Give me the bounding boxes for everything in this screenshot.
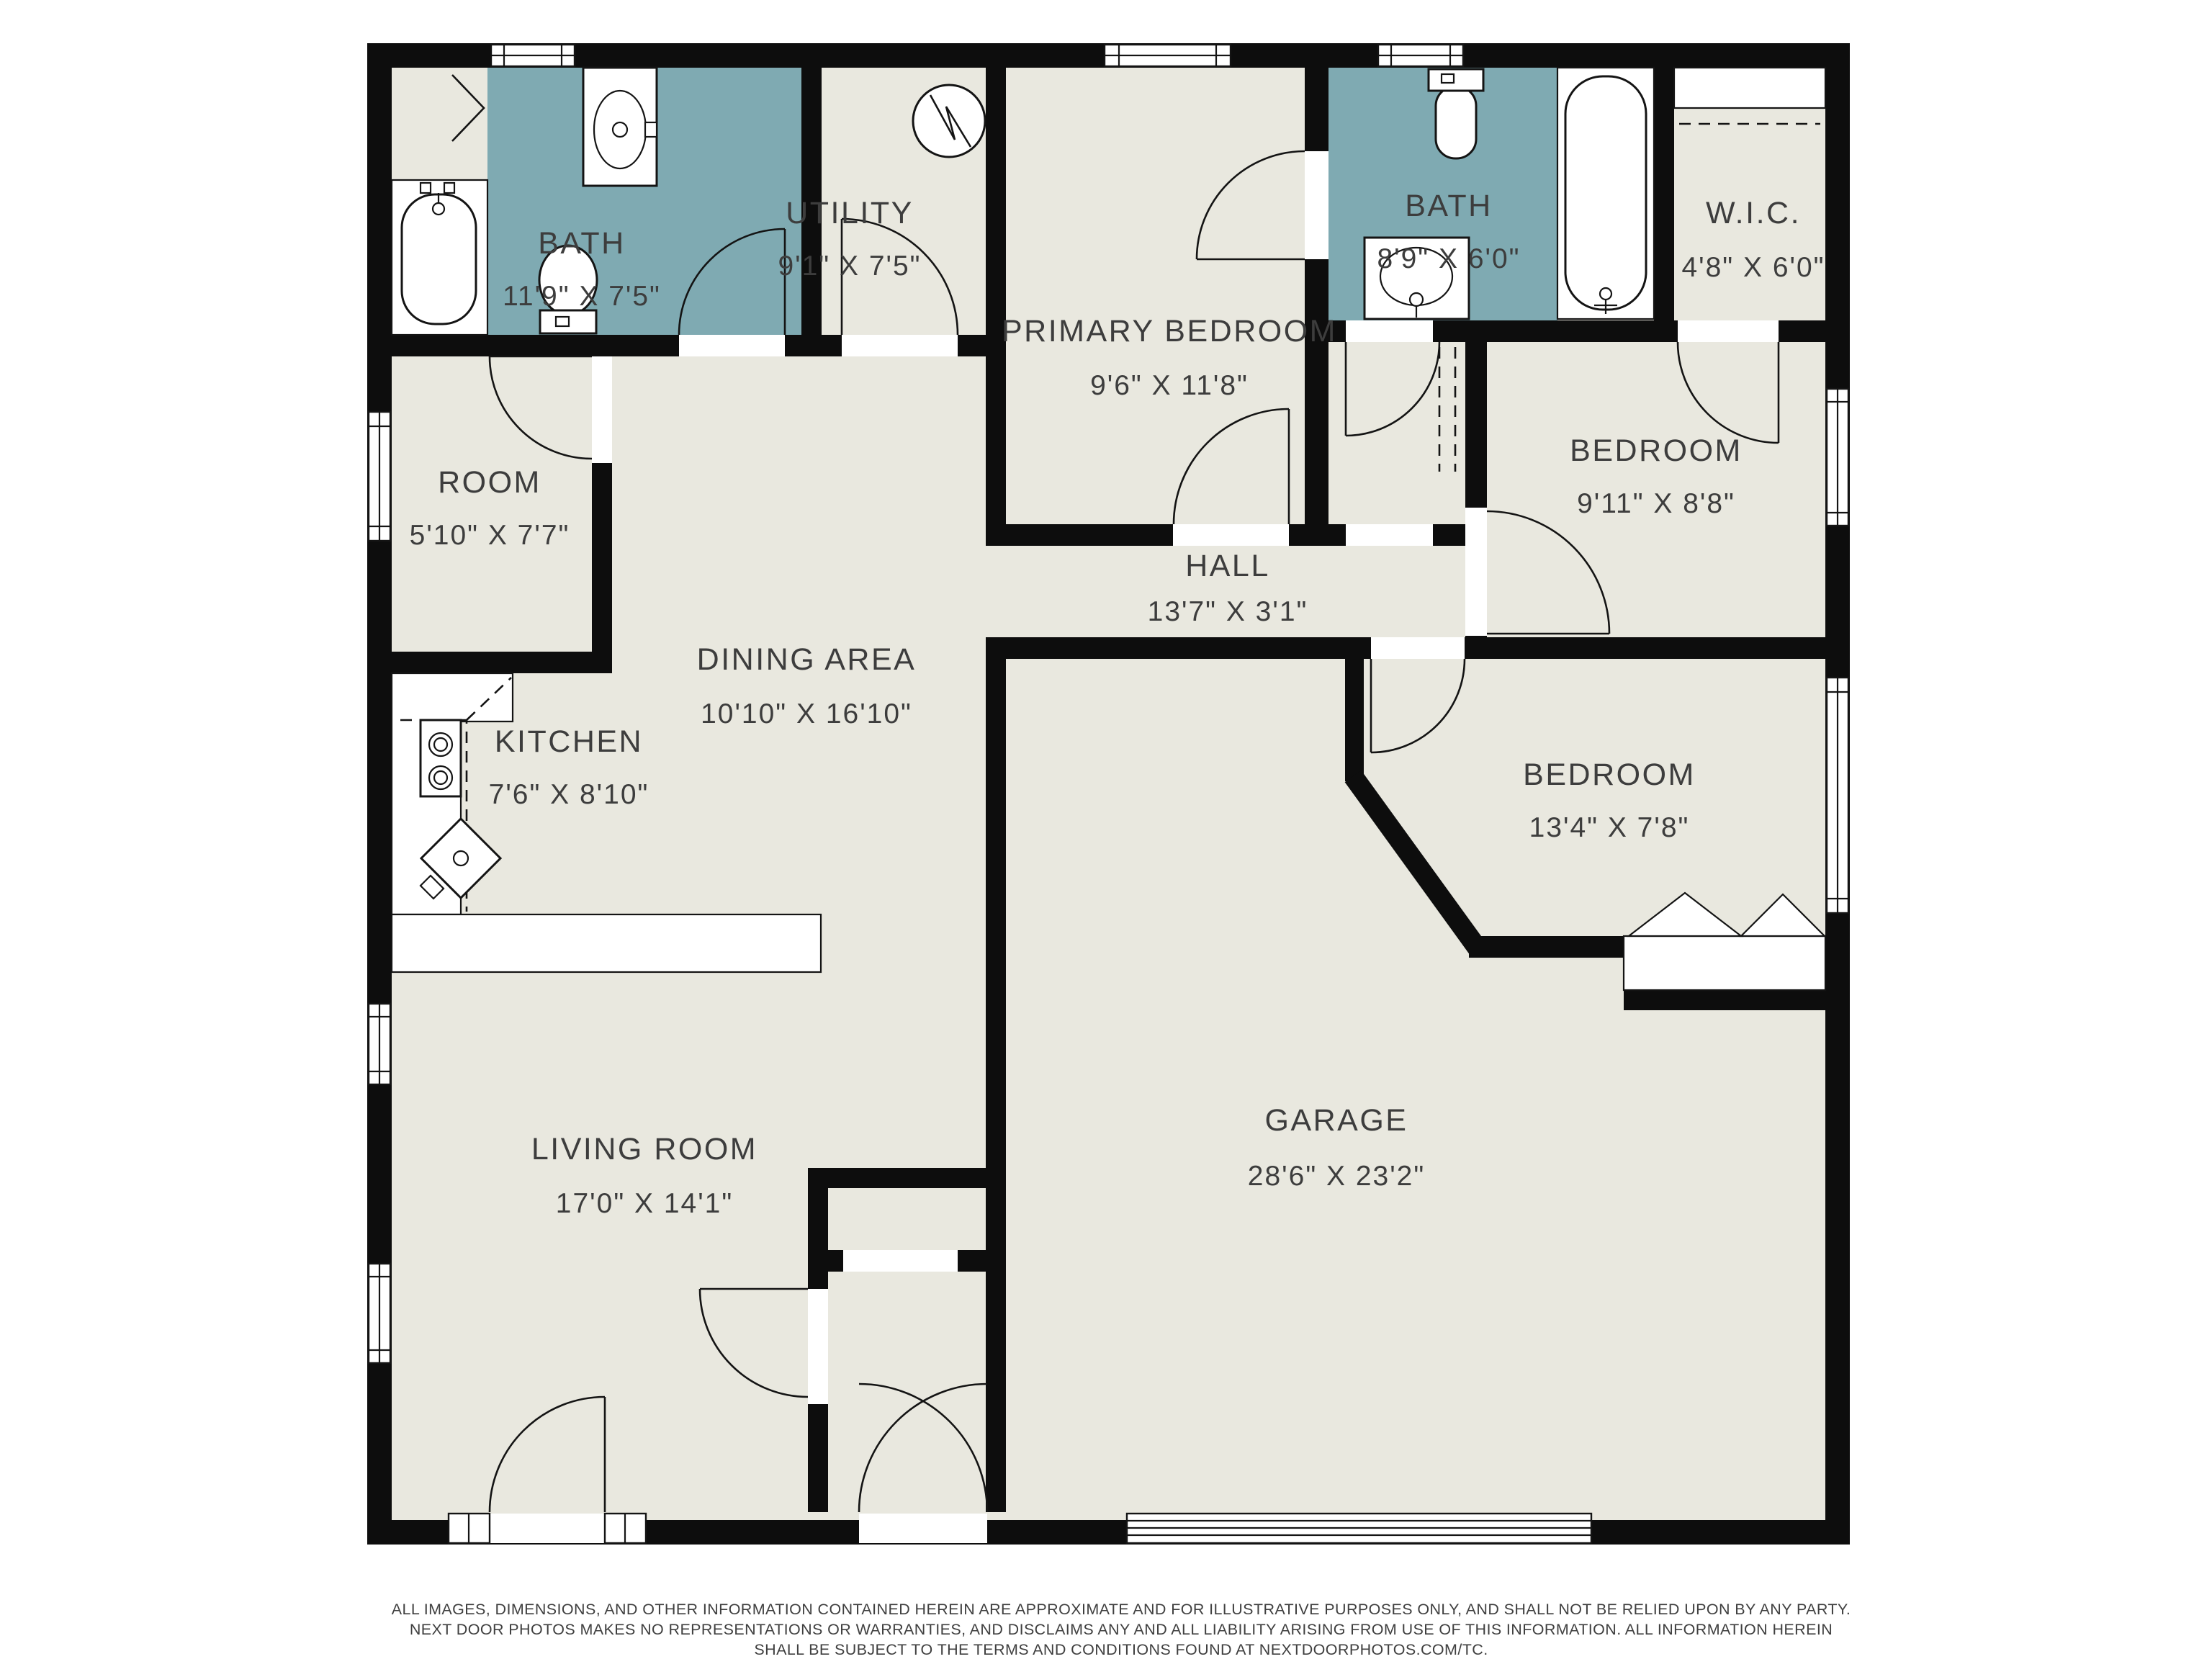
floor-plan-page: BATH 11'9" X 7'5" UTILITY 9'1" X 7'5" PR…: [0, 0, 2212, 1659]
room-label-bedroom-ne: BEDROOM: [1570, 433, 1743, 468]
window-icon: [605, 1514, 646, 1543]
room-dims-living-room: 17'0" X 14'1": [556, 1188, 733, 1219]
sink-icon: [583, 68, 657, 186]
room-dims-wic: 4'8" X 6'0": [1681, 252, 1825, 283]
floor-plan: BATH 11'9" X 7'5" UTILITY 9'1" X 7'5" PR…: [0, 0, 2212, 1659]
room-label-living-room: LIVING ROOM: [531, 1132, 757, 1166]
room-dims-dining-area: 10'10" X 16'10": [701, 698, 912, 729]
window-icon: [491, 45, 575, 66]
disclaimer: ALL IMAGES, DIMENSIONS, AND OTHER INFORM…: [392, 1601, 1851, 1658]
room-dims-hall: 13'7" X 3'1": [1148, 596, 1308, 627]
window-icon: [449, 1514, 490, 1543]
room-label-bath-2: BATH: [1405, 189, 1493, 223]
bathtub-icon: [392, 180, 487, 335]
disclaimer-line-1: ALL IMAGES, DIMENSIONS, AND OTHER INFORM…: [392, 1601, 1851, 1618]
bathtub-icon: [1557, 68, 1654, 319]
room-label-room: ROOM: [438, 465, 541, 500]
room-label-hall: HALL: [1185, 549, 1270, 583]
room-dims-bedroom-ne: 9'11" X 8'8": [1577, 488, 1735, 519]
room-label-bath-1: BATH: [538, 226, 626, 261]
room-label-kitchen: KITCHEN: [495, 724, 643, 759]
window-icon: [369, 1264, 390, 1363]
room-dims-bath-1: 11'9" X 7'5": [503, 281, 661, 312]
toilet-icon: [1429, 69, 1483, 158]
window-icon: [1378, 45, 1463, 66]
window-icon: [369, 1004, 390, 1084]
garage-door-icon: [1127, 1514, 1591, 1543]
room-dims-utility: 9'1" X 7'5": [778, 251, 921, 282]
room-dims-kitchen: 7'6" X 8'10": [489, 779, 649, 810]
room-dims-primary-bedroom: 9'6" X 11'8": [1090, 370, 1249, 401]
window-icon: [1827, 389, 1848, 526]
room-label-utility: UTILITY: [786, 196, 914, 230]
stove-icon: [421, 720, 461, 796]
disclaimer-line-2: NEXT DOOR PHOTOS MAKES NO REPRESENTATION…: [410, 1621, 1833, 1638]
room-dims-room: 5'10" X 7'7": [410, 520, 570, 551]
room-dims-bath-2: 8'9" X 6'0": [1377, 243, 1520, 274]
window-icon: [1827, 678, 1848, 913]
room-label-dining-area: DINING AREA: [697, 642, 917, 677]
water-heater-icon: [913, 85, 985, 157]
room-label-primary-bedroom: PRIMARY BEDROOM: [1002, 314, 1337, 349]
room-dims-bedroom-e: 13'4" X 7'8": [1529, 812, 1690, 843]
disclaimer-line-3: SHALL BE SUBJECT TO THE TERMS AND CONDIT…: [754, 1641, 1488, 1658]
window-icon: [1105, 45, 1231, 66]
room-label-bedroom-e: BEDROOM: [1523, 757, 1696, 792]
room-label-wic: W.I.C.: [1706, 196, 1801, 230]
window-icon: [369, 412, 390, 541]
room-dims-garage: 28'6" X 23'2": [1248, 1161, 1425, 1192]
room-label-garage: GARAGE: [1265, 1103, 1408, 1138]
